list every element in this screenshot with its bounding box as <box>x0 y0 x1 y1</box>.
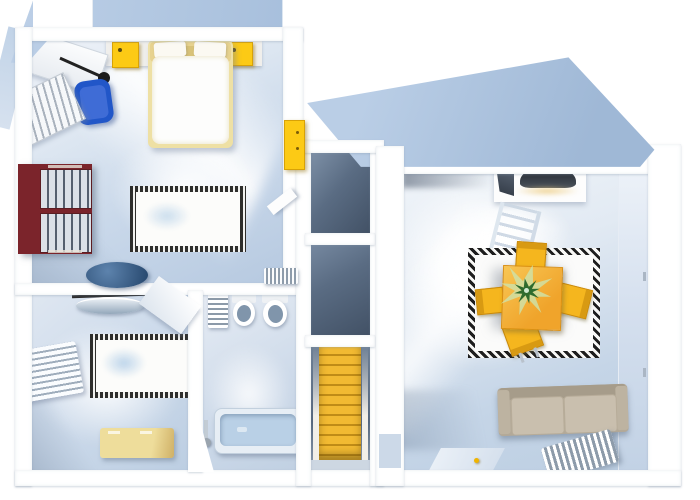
towel-radiator <box>208 294 228 328</box>
outer-left-wall <box>15 27 32 486</box>
outer-right-wall <box>648 144 681 486</box>
wardrobe-doors-top <box>40 169 92 209</box>
bench-highlight <box>140 431 152 434</box>
door-handle <box>474 458 479 463</box>
room-living <box>382 160 652 472</box>
stairwell-left-wall <box>296 140 311 486</box>
room-bathroom <box>202 294 300 472</box>
wardrobe-trim <box>48 250 82 253</box>
rug-light-blob <box>102 348 146 378</box>
chair-backrest <box>476 290 484 314</box>
bedroom-wall-cabinet <box>284 120 305 170</box>
stairwell-divider-wall <box>305 233 375 245</box>
wall-switch <box>643 272 646 281</box>
wardrobe <box>18 164 92 254</box>
sofa-arm <box>497 390 511 434</box>
wardrobe-trim <box>48 165 82 168</box>
glass-basin <box>76 297 144 314</box>
bathtub <box>214 408 300 454</box>
hood-glow <box>514 186 580 196</box>
bedroom-rug <box>130 186 246 252</box>
wardrobe-doors-bottom <box>40 213 92 253</box>
plant-highlight <box>524 288 529 293</box>
cabinet-knob <box>296 147 299 150</box>
floorplan-scene <box>0 0 700 500</box>
bench-highlight <box>108 431 120 434</box>
bidet <box>262 294 288 328</box>
landing-shade <box>310 244 371 336</box>
toilet <box>232 294 256 328</box>
fin-radiator <box>541 429 620 472</box>
stairwell-divider-wall-2 <box>305 335 375 347</box>
drawer-knob <box>118 48 122 52</box>
stairwell-top-wall <box>296 140 384 153</box>
sofa-cushion <box>564 394 618 434</box>
outer-bottom-wall <box>15 470 681 486</box>
cabinet-knob <box>296 131 299 134</box>
double-bed <box>148 40 233 148</box>
stair-lower-landing <box>310 244 371 336</box>
radiator-shelf <box>32 341 84 403</box>
bedroom-top-wall <box>20 27 303 41</box>
washbasin-bowl <box>86 262 148 288</box>
nightstand-left <box>112 42 139 68</box>
rug-light-blob <box>144 202 190 230</box>
doorway-opening <box>379 434 401 468</box>
living-left-wall <box>376 146 404 486</box>
stair-steps <box>319 346 361 460</box>
door-mat <box>427 448 505 472</box>
bathroom-wall-radiator <box>264 268 298 284</box>
bathtub-drain <box>237 427 247 432</box>
bathtub-basin <box>220 414 296 446</box>
sofa <box>497 384 629 437</box>
staircase-well <box>310 346 371 472</box>
chair-backrest <box>518 242 546 250</box>
stair-stringer-right <box>362 346 368 462</box>
duvet <box>152 56 229 144</box>
wall-switch <box>643 368 646 377</box>
sofa-cushion <box>511 396 565 436</box>
second-room-rug <box>90 334 190 398</box>
storage-bench <box>100 428 174 458</box>
